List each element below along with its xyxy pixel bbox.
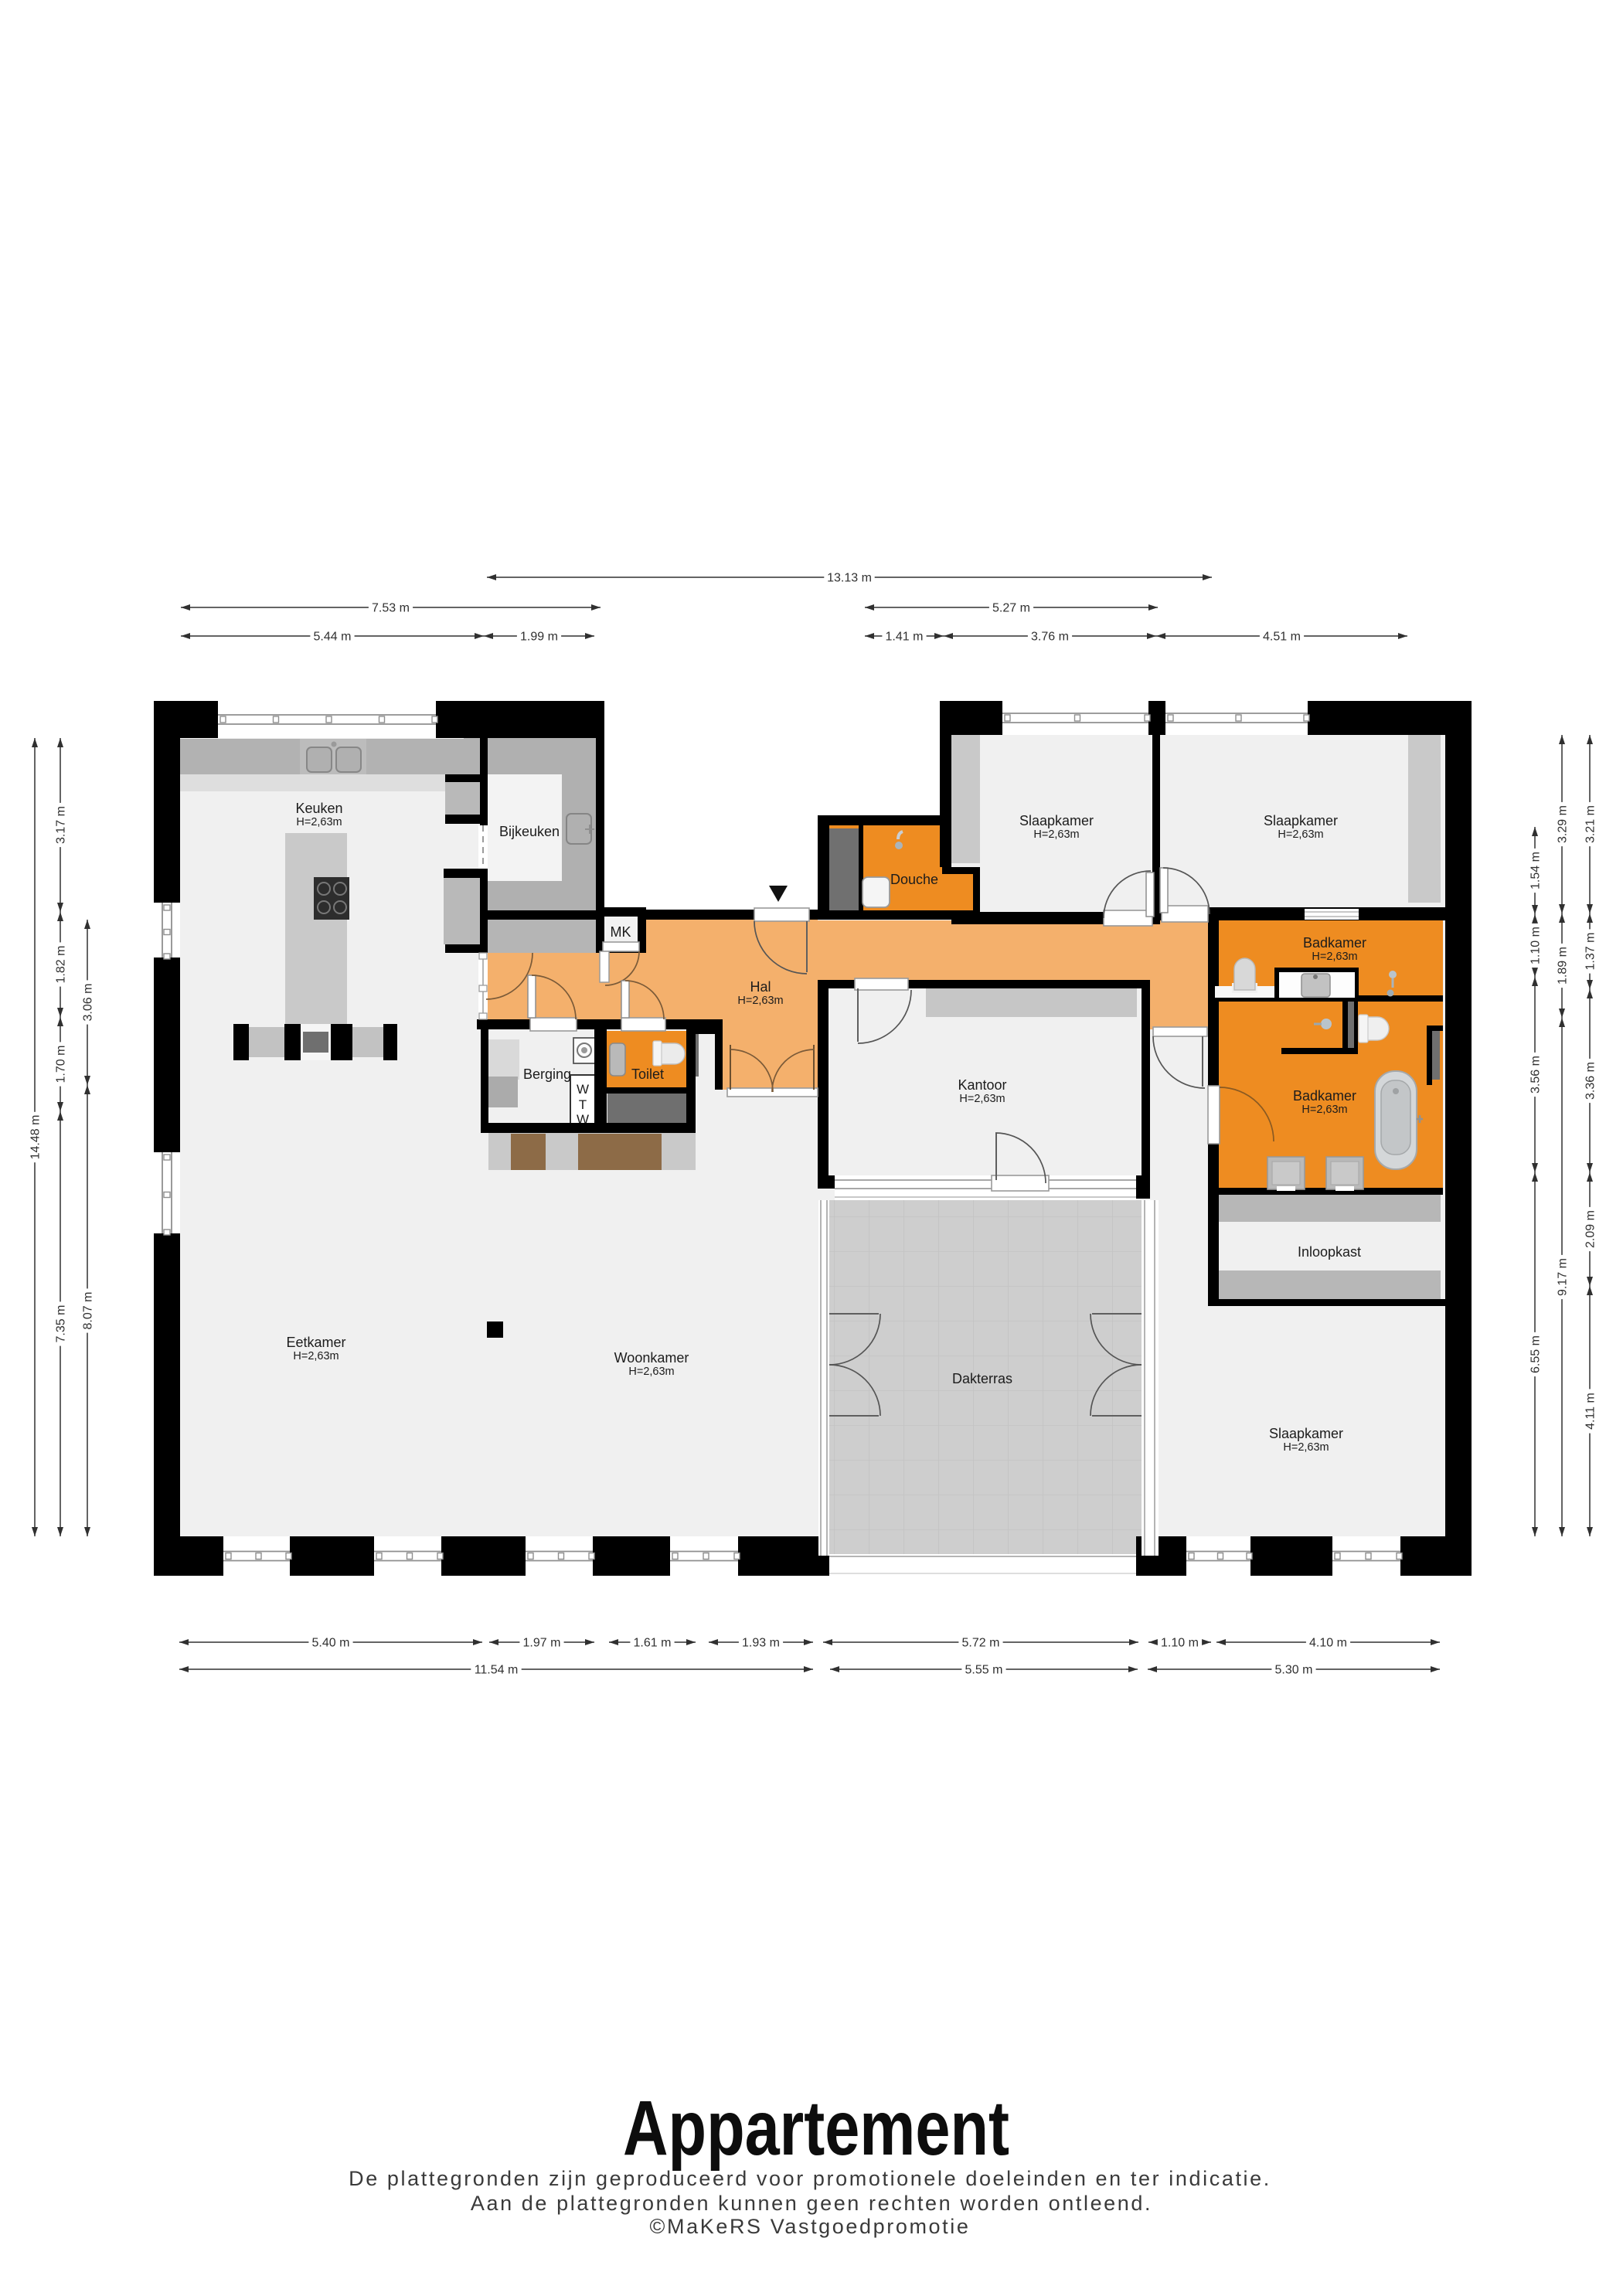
- svg-text:H=2,63m: H=2,63m: [1312, 951, 1357, 963]
- svg-text:5.55 m: 5.55 m: [965, 1664, 1003, 1677]
- svg-text:4.11 m: 4.11 m: [1584, 1393, 1597, 1430]
- svg-text:5.27 m: 5.27 m: [992, 602, 1030, 615]
- svg-text:Slaapkamer: Slaapkamer: [1264, 813, 1338, 828]
- svg-text:1.41 m: 1.41 m: [886, 631, 924, 644]
- svg-text:1.93 m: 1.93 m: [742, 1637, 780, 1650]
- svg-text:3.17 m: 3.17 m: [55, 806, 68, 844]
- svg-text:H=2,63m: H=2,63m: [293, 1350, 339, 1362]
- svg-text:Douche: Douche: [890, 872, 938, 887]
- svg-text:7.35 m: 7.35 m: [55, 1305, 68, 1343]
- svg-text:H=2,63m: H=2,63m: [737, 995, 783, 1007]
- svg-text:Appartement: Appartement: [623, 2085, 1009, 2172]
- svg-text:Slaapkamer: Slaapkamer: [1019, 813, 1094, 828]
- svg-text:Badkamer: Badkamer: [1303, 935, 1366, 951]
- svg-text:1.97 m: 1.97 m: [523, 1637, 561, 1650]
- svg-text:5.40 m: 5.40 m: [312, 1637, 350, 1650]
- svg-text:5.72 m: 5.72 m: [962, 1637, 1000, 1650]
- svg-text:2.09 m: 2.09 m: [1584, 1210, 1597, 1248]
- svg-text:Bijkeuken: Bijkeuken: [499, 824, 560, 839]
- svg-text:7.53 m: 7.53 m: [372, 602, 410, 615]
- svg-text:Kantoor: Kantoor: [958, 1077, 1006, 1093]
- svg-text:3.76 m: 3.76 m: [1031, 631, 1069, 644]
- svg-text:Slaapkamer: Slaapkamer: [1269, 1426, 1343, 1441]
- svg-text:H=2,63m: H=2,63m: [628, 1366, 674, 1378]
- svg-text:Hal: Hal: [750, 979, 771, 995]
- svg-text:©MaKeRS Vastgoedpromotie: ©MaKeRS Vastgoedpromotie: [650, 2215, 971, 2238]
- svg-text:14.48 m: 14.48 m: [29, 1115, 43, 1160]
- svg-text:De plattegronden zijn geproduc: De plattegronden zijn geproduceerd voor …: [349, 2167, 1271, 2190]
- svg-text:3.21 m: 3.21 m: [1584, 805, 1597, 843]
- svg-text:H=2,63m: H=2,63m: [1301, 1104, 1347, 1116]
- svg-text:Keuken: Keuken: [295, 801, 342, 816]
- svg-text:3.36 m: 3.36 m: [1584, 1062, 1597, 1100]
- svg-text:H=2,63m: H=2,63m: [1278, 828, 1323, 841]
- svg-text:3.29 m: 3.29 m: [1557, 805, 1570, 843]
- svg-text:1.99 m: 1.99 m: [520, 631, 558, 644]
- svg-text:H=2,63m: H=2,63m: [959, 1093, 1005, 1105]
- svg-text:3.06 m: 3.06 m: [82, 984, 95, 1022]
- svg-text:1.10 m: 1.10 m: [1529, 927, 1543, 964]
- svg-text:13.13 m: 13.13 m: [827, 572, 872, 585]
- svg-text:8.07 m: 8.07 m: [82, 1292, 95, 1330]
- svg-text:5.44 m: 5.44 m: [314, 631, 352, 644]
- svg-text:H=2,63m: H=2,63m: [296, 816, 342, 828]
- svg-text:1.37 m: 1.37 m: [1584, 933, 1597, 971]
- svg-text:Dakterras: Dakterras: [952, 1371, 1012, 1386]
- svg-text:3.56 m: 3.56 m: [1529, 1056, 1543, 1094]
- svg-text:1.10 m: 1.10 m: [1161, 1637, 1199, 1650]
- svg-text:4.10 m: 4.10 m: [1309, 1637, 1347, 1650]
- svg-text:1.89 m: 1.89 m: [1557, 947, 1570, 985]
- svg-text:H=2,63m: H=2,63m: [1283, 1441, 1329, 1454]
- svg-text:Badkamer: Badkamer: [1293, 1088, 1356, 1104]
- svg-text:9.17 m: 9.17 m: [1557, 1258, 1570, 1296]
- svg-text:6.55 m: 6.55 m: [1529, 1335, 1543, 1373]
- svg-text:1.70 m: 1.70 m: [55, 1046, 68, 1083]
- svg-text:T: T: [579, 1097, 587, 1112]
- svg-text:Aan de plattegronden kunnen ge: Aan de plattegronden kunnen geen rechten…: [471, 2192, 1152, 2215]
- svg-text:MK: MK: [611, 924, 631, 940]
- svg-text:1.54 m: 1.54 m: [1529, 852, 1543, 889]
- svg-text:5.30 m: 5.30 m: [1275, 1664, 1313, 1677]
- svg-text:Eetkamer: Eetkamer: [286, 1335, 345, 1350]
- svg-text:W: W: [577, 1082, 589, 1097]
- svg-text:Woonkamer: Woonkamer: [614, 1350, 689, 1366]
- svg-text:1.61 m: 1.61 m: [634, 1637, 672, 1650]
- svg-text:Berging: Berging: [523, 1066, 571, 1082]
- svg-text:11.54 m: 11.54 m: [475, 1664, 519, 1677]
- svg-text:Inloopkast: Inloopkast: [1298, 1244, 1361, 1260]
- svg-text:1.82 m: 1.82 m: [55, 946, 68, 984]
- svg-text:4.51 m: 4.51 m: [1263, 631, 1301, 644]
- svg-text:Toilet: Toilet: [631, 1066, 664, 1082]
- svg-text:H=2,63m: H=2,63m: [1033, 828, 1079, 841]
